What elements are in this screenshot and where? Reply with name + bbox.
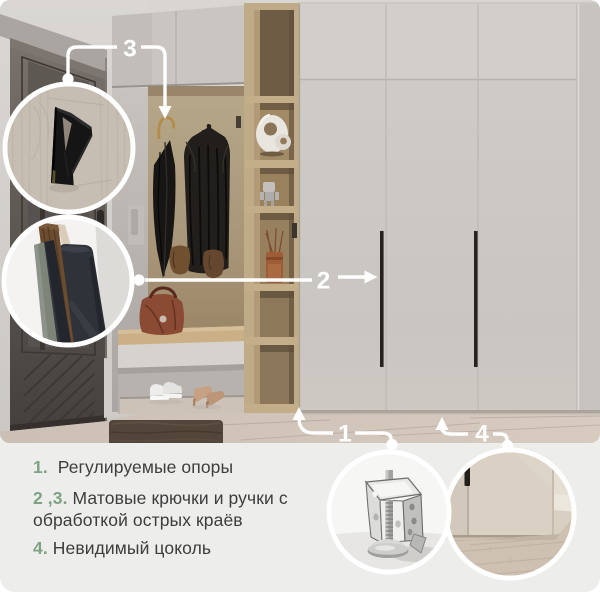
svg-text:3: 3: [123, 35, 137, 62]
svg-text:4: 4: [475, 420, 489, 447]
svg-text:2: 2: [317, 268, 331, 295]
svg-text:1: 1: [338, 420, 352, 447]
